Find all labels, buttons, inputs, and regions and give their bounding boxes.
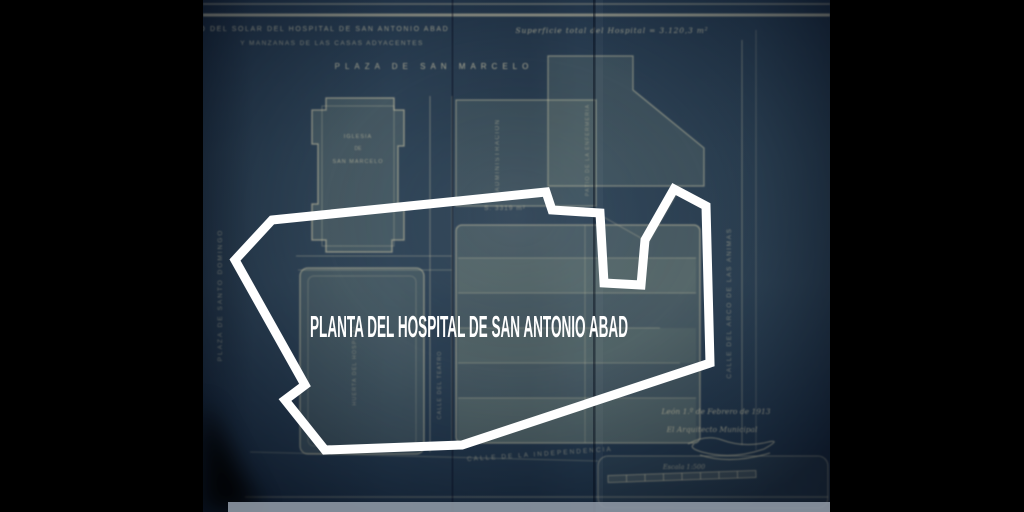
- blueprint-photo: PLANO DEL SOLAR DEL HOSPITAL DE SAN ANTO…: [0, 0, 1024, 512]
- fold-crease: [452, 0, 454, 512]
- overlay-title: PLANTA DEL HOSPITAL DE SAN ANTONIO ABAD: [310, 309, 628, 344]
- photo-vignette: [203, 0, 830, 512]
- screenshot-canvas: PLANO DEL SOLAR DEL HOSPITAL DE SAN ANTO…: [0, 0, 1024, 512]
- photo-bottom-strip: [228, 502, 830, 512]
- fold-crease: [593, 0, 596, 512]
